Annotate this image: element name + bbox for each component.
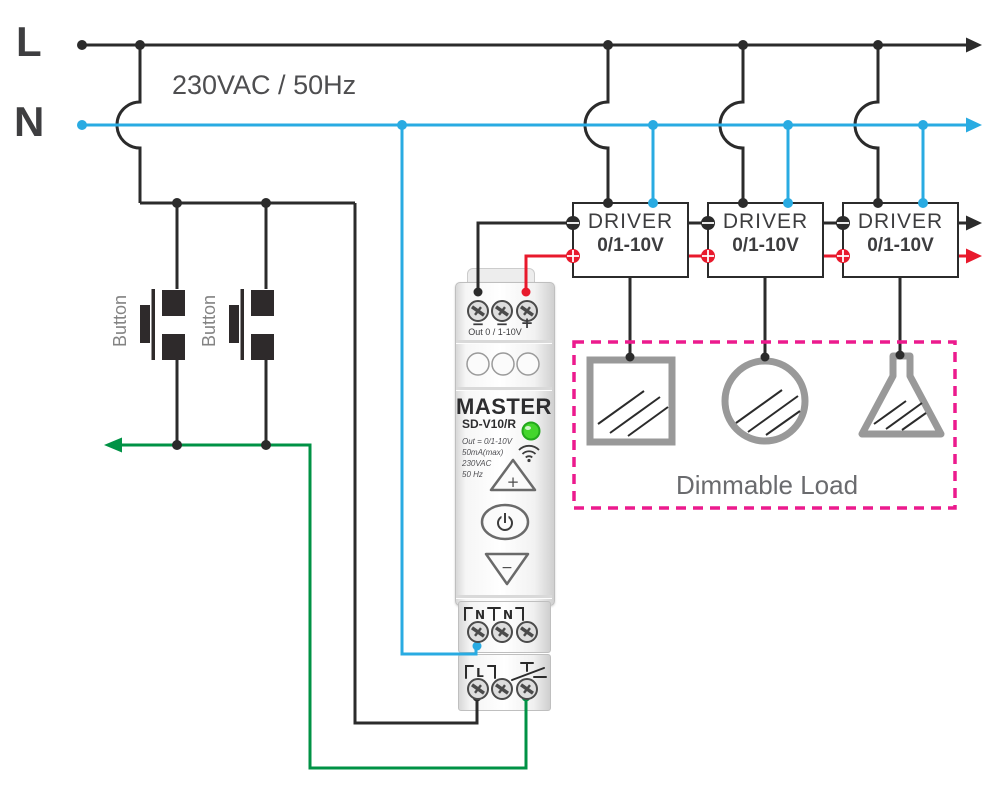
driver2-text: DRIVER 0/1-10V xyxy=(708,209,823,258)
neutral-label: N xyxy=(14,102,44,142)
device-groove xyxy=(456,387,552,391)
dim-signal-wire xyxy=(526,256,966,292)
driver3-text: DRIVER 0/1-10V xyxy=(843,209,958,258)
driver1-text: DRIVER 0/1-10V xyxy=(573,209,688,258)
device-groove xyxy=(456,340,552,344)
output-terminal-label: Out 0 / 1-10V xyxy=(455,327,535,337)
line-label: L xyxy=(16,22,42,62)
spec-out: Out = 0/1-10V xyxy=(462,436,512,447)
supply-label: 230VAC / 50Hz xyxy=(172,70,356,101)
square-load-icon xyxy=(590,360,672,442)
switched-arrow xyxy=(104,438,122,453)
driver-chain-arrow xyxy=(966,216,982,231)
device-specs: Out = 0/1-10V 50mA(max) 230VAC 50 Hz xyxy=(462,436,512,480)
round-load-icon xyxy=(725,361,805,441)
spec-voltage: 230VAC xyxy=(462,458,512,469)
driver1-type: 0/1-10V xyxy=(573,234,688,258)
driver3-type: 0/1-10V xyxy=(843,234,958,258)
push-button-symbol xyxy=(140,289,185,360)
device-terminal-block-l xyxy=(458,654,551,711)
driver3-name: DRIVER xyxy=(843,209,958,234)
device-groove xyxy=(456,595,552,599)
button1-label: Button xyxy=(110,275,132,367)
driver2-type: 0/1-10V xyxy=(708,234,823,258)
device-terminal-block-n xyxy=(458,601,551,653)
driver1-name: DRIVER xyxy=(573,209,688,234)
button2-label: Button xyxy=(199,275,221,367)
device-model: SD-V10/R xyxy=(462,417,516,431)
wiring-diagram: − − + N N L + xyxy=(0,0,1000,800)
dim-signal-arrow xyxy=(966,249,982,264)
spec-current: 50mA(max) xyxy=(462,447,512,458)
driver2-name: DRIVER xyxy=(708,209,823,234)
spec-frequency: 50 Hz xyxy=(462,469,512,480)
neutral-arrow xyxy=(966,118,982,133)
pendant-load-icon xyxy=(862,356,941,434)
line-arrow xyxy=(966,38,982,53)
dimmable-load-label: Dimmable Load xyxy=(617,470,917,501)
push-button-symbol xyxy=(229,289,274,360)
